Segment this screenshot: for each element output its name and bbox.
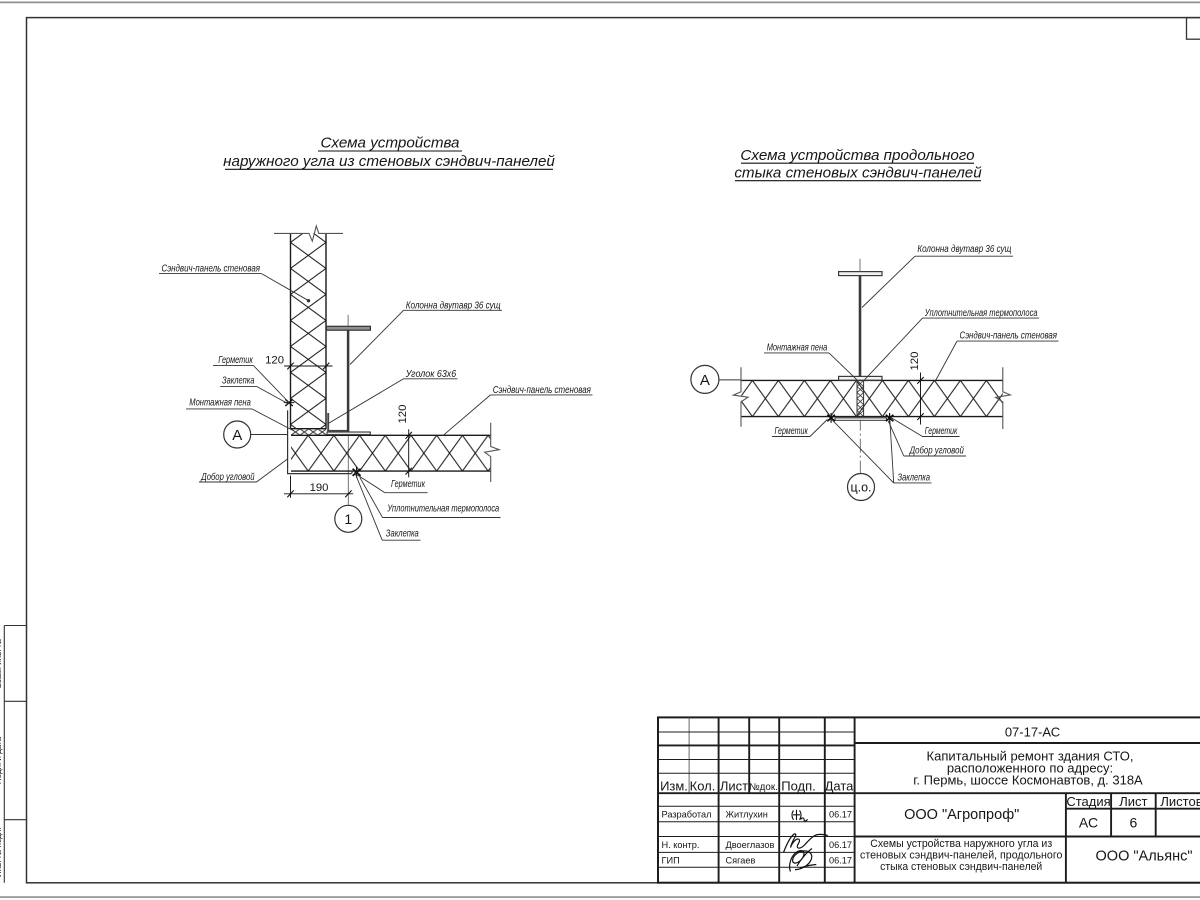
svg-text:07-17-АС: 07-17-АС [1005, 724, 1060, 739]
svg-text:06.17: 06.17 [829, 810, 852, 820]
svg-text:Колонна двутавр 36 сущ: Колонна двутавр 36 сущ [406, 300, 501, 311]
svg-text:Колонна двутавр 36 сущ: Колонна двутавр 36 сущ [917, 244, 1011, 255]
svg-text:Схема устройства продольного: Схема устройства продольного [740, 147, 974, 164]
svg-text:Герметик: Герметик [218, 355, 253, 366]
svg-text:Изм.: Изм. [660, 779, 688, 794]
svg-text:Подп.: Подп. [781, 779, 816, 794]
svg-text:Уплотнительная термополоса: Уплотнительная термополоса [387, 504, 500, 515]
svg-text:06.17: 06.17 [829, 840, 852, 850]
svg-text:Дата: Дата [825, 779, 855, 794]
svg-text:Сэндвич-панель стеновая: Сэндвич-панель стеновая [162, 264, 261, 275]
svg-text:120: 120 [397, 405, 409, 424]
svg-text:Двоеглазов: Двоеглазов [726, 840, 775, 850]
svg-text:стеновых сэндвич-панелей, прод: стеновых сэндвич-панелей, продольного [860, 849, 1062, 861]
svg-text:Схема устройства: Схема устройства [320, 135, 459, 152]
svg-text:ООО "Агропроф": ООО "Агропроф" [904, 807, 1019, 823]
svg-text:ООО "Альянс": ООО "Альянс" [1096, 849, 1193, 865]
svg-text:Схемы устройства наружного угл: Схемы устройства наружного угла из [870, 838, 1052, 850]
svg-text:Взам. инв. №: Взам. инв. № [0, 638, 3, 688]
svg-text:Добор угловой: Добор угловой [909, 446, 965, 457]
svg-text:Разработал: Разработал [662, 810, 712, 820]
svg-text:Сягаев: Сягаев [726, 856, 756, 866]
svg-text:Заклепка: Заклепка [898, 473, 931, 484]
svg-text:Инв. № подл.: Инв. № подл. [0, 827, 3, 877]
svg-text:г. Пермь, шоссе Космонавтов, д: г. Пермь, шоссе Космонавтов, д. 318А [913, 773, 1143, 788]
svg-text:Лист: Лист [720, 779, 748, 794]
svg-text:120: 120 [909, 352, 921, 371]
svg-text:Стадия: Стадия [1066, 794, 1110, 809]
svg-text:1: 1 [344, 511, 352, 527]
svg-text:А: А [232, 427, 242, 444]
svg-text:Сэндвич-панель стеновая: Сэндвич-панель стеновая [960, 331, 1058, 342]
svg-text:6: 6 [1130, 815, 1138, 831]
svg-text:А: А [700, 372, 710, 389]
svg-text:Лист: Лист [1119, 794, 1147, 809]
svg-text:Кол.: Кол. [690, 779, 716, 794]
svg-text:Монтажная пена: Монтажная пена [767, 343, 828, 354]
svg-text:ц.о.: ц.о. [850, 481, 871, 495]
svg-text:Герметик: Герметик [391, 479, 425, 490]
svg-text:120: 120 [265, 354, 284, 366]
svg-text:Заклепка: Заклепка [386, 528, 419, 539]
svg-text:Уплотнительная термополоса: Уплотнительная термополоса [924, 308, 1038, 319]
svg-text:Заклепка: Заклепка [222, 376, 255, 387]
svg-text:Подп. и дата: Подп. и дата [0, 736, 3, 784]
svg-text:Листов: Листов [1160, 794, 1200, 809]
svg-text:АС: АС [1079, 815, 1098, 831]
svg-text:№док.: №док. [749, 782, 778, 793]
svg-text:Герметик: Герметик [775, 426, 809, 437]
svg-text:06.17: 06.17 [829, 856, 852, 866]
svg-text:стыка стеновых сэндвич-панелей: стыка стеновых сэндвич-панелей [734, 164, 982, 181]
svg-text:ГИП: ГИП [662, 856, 680, 866]
svg-text:Монтажная пена: Монтажная пена [189, 397, 251, 408]
svg-text:Герметик: Герметик [925, 426, 958, 437]
svg-text:Н. контр.: Н. контр. [662, 840, 700, 850]
svg-text:стыка стеновых сэндвич-панелей: стыка стеновых сэндвич-панелей [880, 861, 1042, 873]
svg-text:наружного угла из стеновых сэн: наружного угла из стеновых сэндвич-панел… [223, 153, 555, 170]
svg-text:190: 190 [310, 482, 329, 494]
svg-text:Житлухин: Житлухин [726, 810, 768, 820]
